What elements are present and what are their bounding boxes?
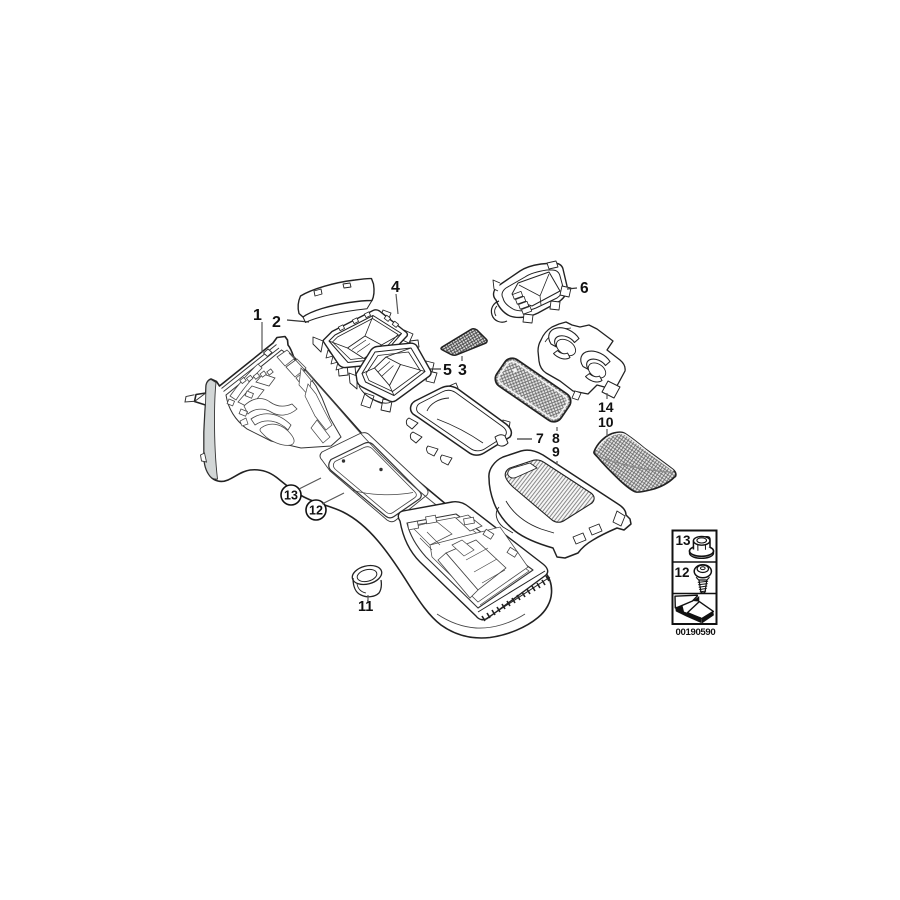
svg-text:7: 7 xyxy=(536,430,544,446)
svg-text:1: 1 xyxy=(253,307,262,324)
svg-text:13: 13 xyxy=(284,489,298,503)
svg-text:13: 13 xyxy=(676,533,692,548)
svg-text:3: 3 xyxy=(458,362,467,379)
svg-text:12: 12 xyxy=(675,565,690,580)
svg-text:12: 12 xyxy=(309,504,323,518)
svg-text:10: 10 xyxy=(598,414,614,430)
svg-text:14: 14 xyxy=(598,399,614,415)
svg-text:11: 11 xyxy=(358,599,373,615)
svg-text:5: 5 xyxy=(443,362,452,379)
svg-text:2: 2 xyxy=(272,314,281,331)
svg-text:00190590: 00190590 xyxy=(676,627,716,638)
svg-text:9: 9 xyxy=(552,444,560,460)
svg-text:6: 6 xyxy=(580,280,589,297)
svg-text:4: 4 xyxy=(391,279,400,296)
